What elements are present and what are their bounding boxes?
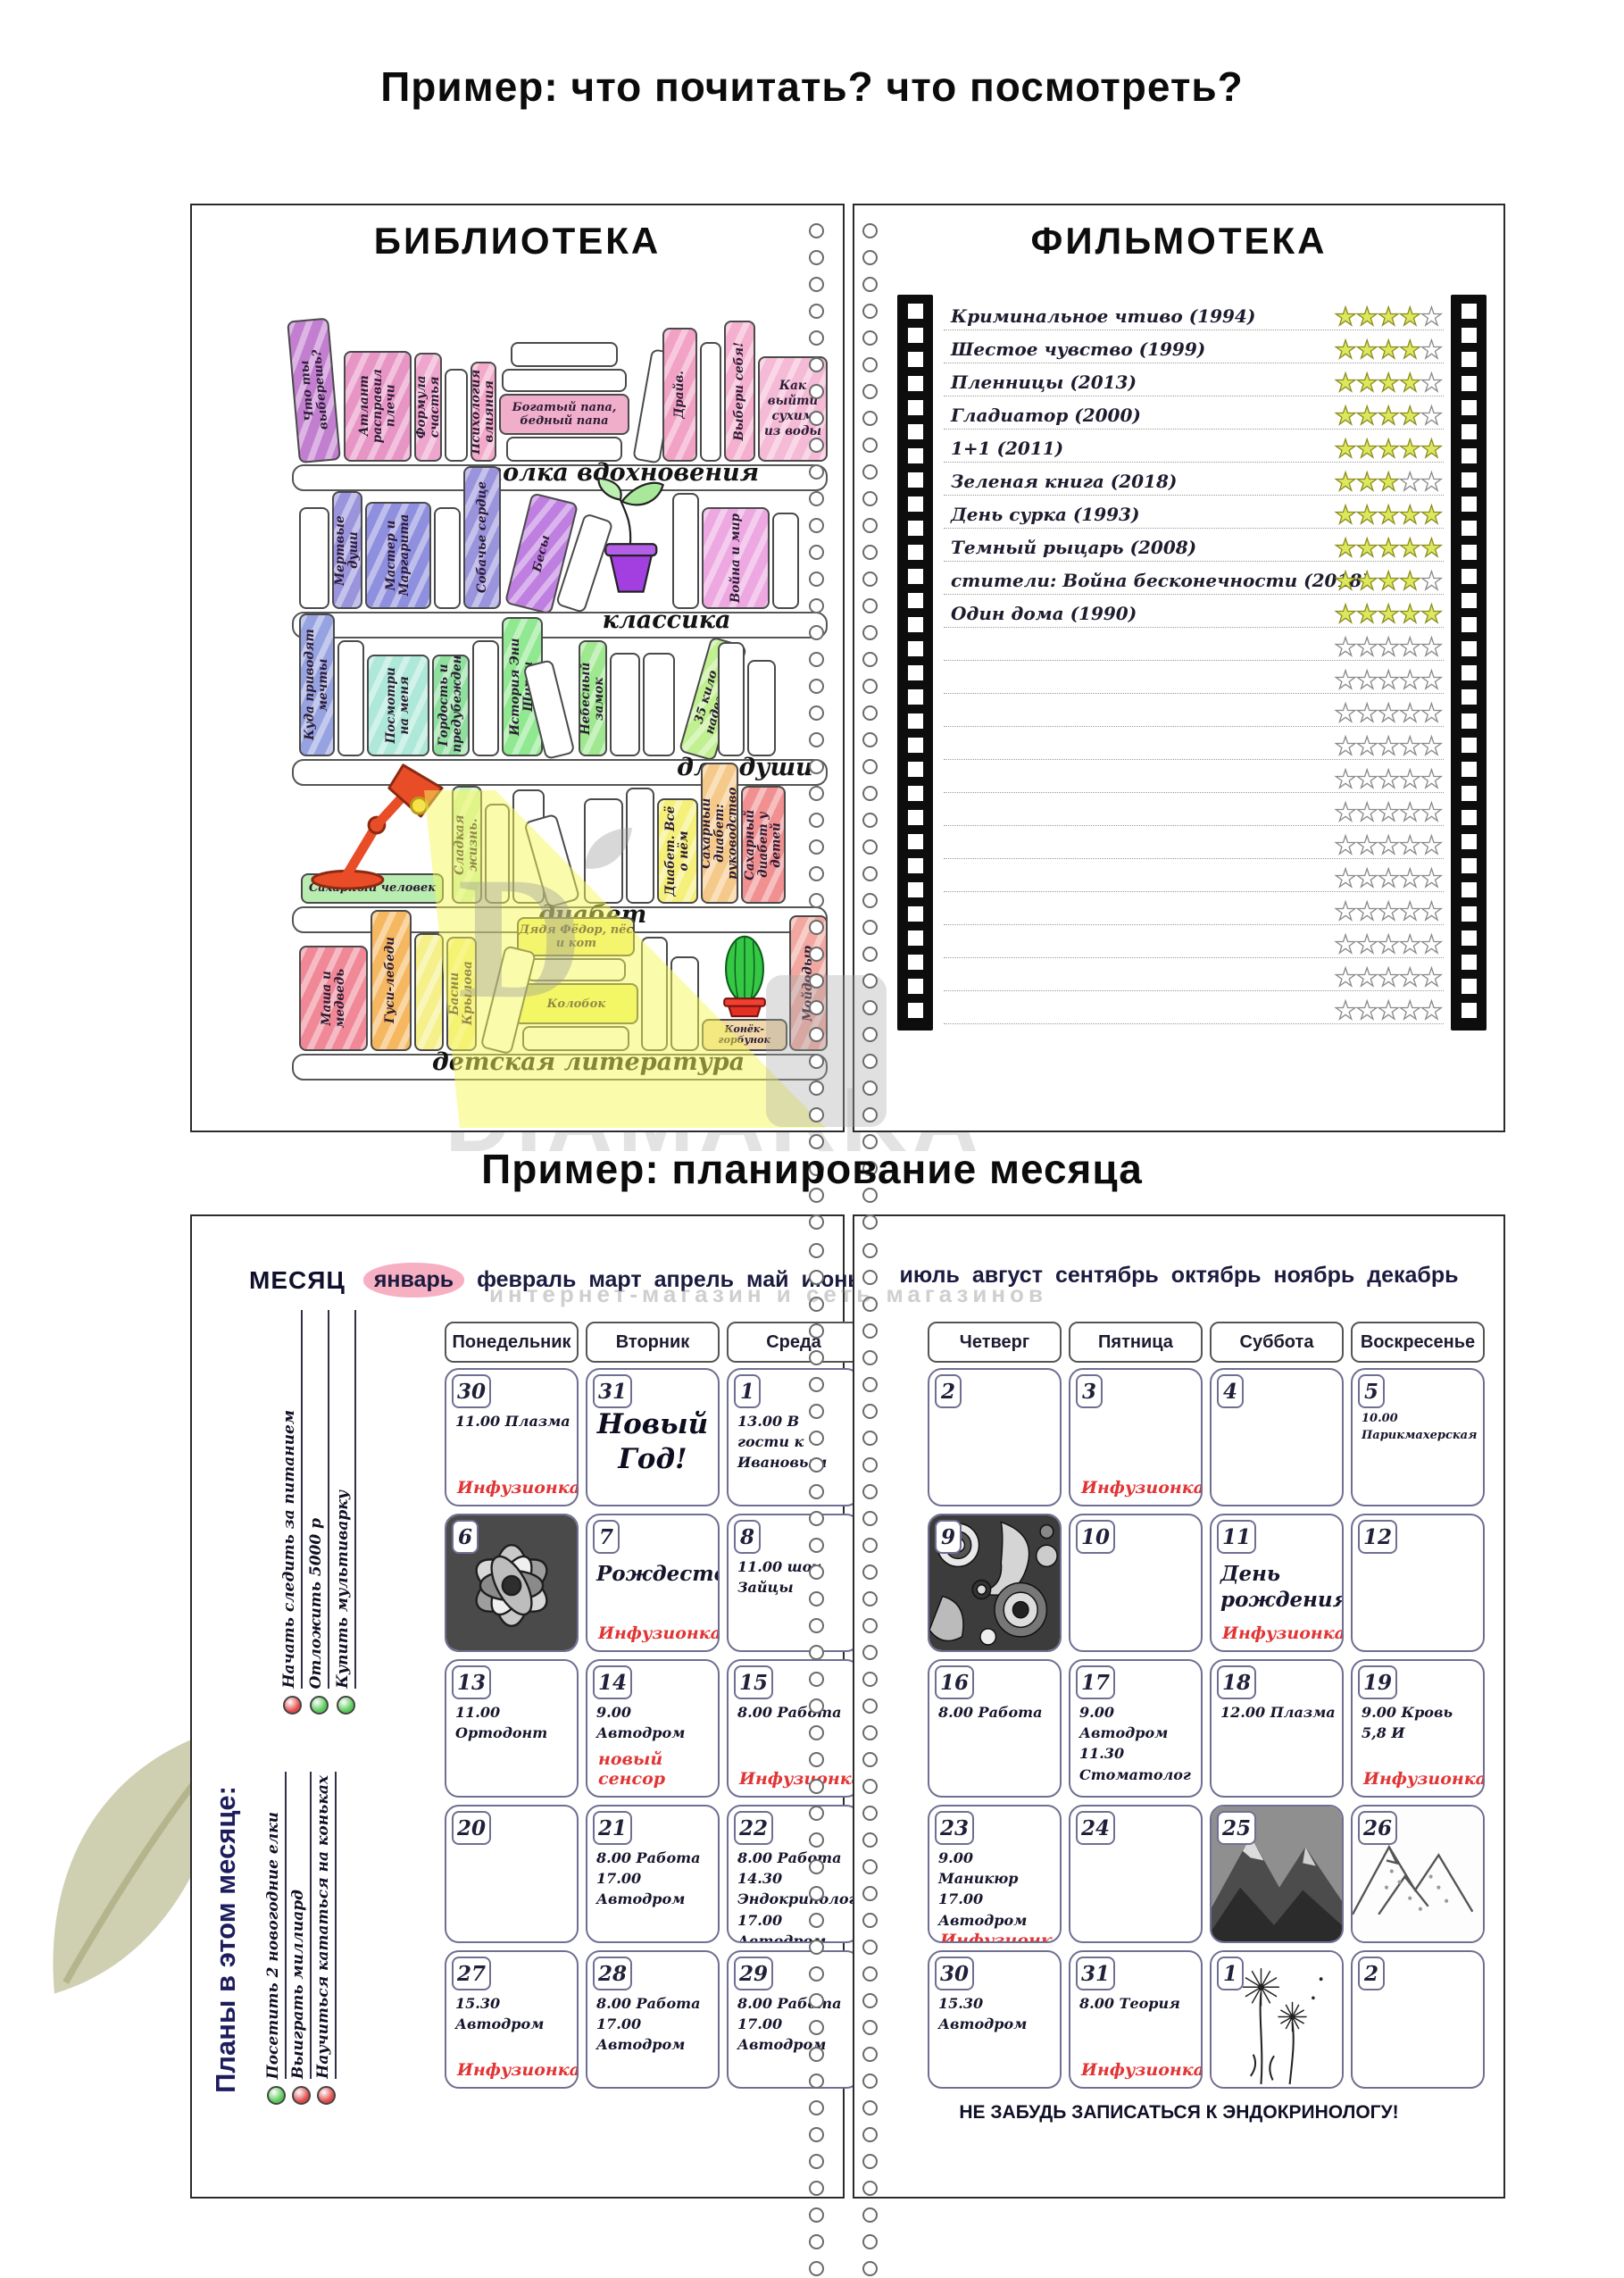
day-number: 14 [593,1665,632,1699]
day-number: 6 [452,1520,479,1554]
star-icon: ★ [1378,930,1399,958]
day-number: 1 [1217,1957,1244,1990]
spiral-ring-hole [809,2127,824,2142]
day-entries: 15.30 Автодром [446,1993,577,2034]
film-title: Шестое чувство (1999) [951,338,1205,360]
goal-line [328,1310,329,1689]
book-spine [445,369,467,462]
filmoteka-title: ФИЛЬМОТЕКА [854,220,1503,263]
film-row: ★★★★★ [944,858,1444,892]
book-spine [472,640,499,756]
spiral-ring-column [809,223,823,1107]
weekday-header: Воскресенье [1351,1322,1485,1363]
spiral-ring-hole [809,1591,824,1606]
spiral-ring-hole [809,1565,824,1580]
goal-item: Отложить 5000 р [304,1310,329,1689]
spiral-ring-hole [809,2207,824,2223]
calendar-day-cell: 179.00 Автодром11.30 Стоматолог [1069,1659,1203,1798]
goal-item: Купить мультиварку [331,1310,356,1689]
calendar-day-cell: 20 [445,1805,579,1943]
star-icon: ★ [1334,369,1355,396]
day-entry-line: 17.00 Автодром [596,1868,712,1909]
film-perforation-icon [908,472,923,488]
book-spine-label: Формула счастья [415,356,442,457]
calendar-day-cell: 218.00 Работа17.00 Автодром [586,1805,720,1943]
month-name: ноябрь [1274,1263,1355,1289]
spiral-ring-hole [809,1698,824,1714]
book-spine [672,493,699,609]
star-icon: ★ [1378,798,1399,826]
star-icon: ★ [1420,798,1442,826]
day-entry-line: 17.00 Автодром [737,1910,854,1943]
bottom-caption: Пример: планирование месяца [0,1145,1624,1193]
book-spine-label: Психология влияния [471,365,496,458]
film-rating-stars: ★★★★★ [1334,863,1442,895]
planner-product-sheet: Пример: что почитать? что посмотреть? DI… [0,0,1624,2278]
goal-text: Отложить 5000 р [307,1518,325,1689]
book-spine-label: Атлант расправил плечи [358,355,398,457]
star-icon: ★ [1399,600,1420,628]
day-number: 17 [1076,1665,1115,1699]
spiral-ring-hole [809,384,824,399]
day-entry-line: 8.00 Теория [1079,1993,1195,2014]
spiral-ring-hole [809,679,824,694]
library-title: БИБЛИОТЕКА [192,220,843,263]
book-horizontal [511,342,618,367]
star-icon: ★ [1420,600,1442,628]
spiral-ring-hole [809,1645,824,1660]
calendar-day-cell: 288.00 Работа17.00 Автодром [586,1950,720,2089]
star-icon: ★ [1399,303,1420,330]
spiral-ring-hole [809,1214,824,1230]
book-spine-label: Маша и медведь [321,949,347,1047]
book-spine: Мертвые души [332,491,362,609]
day-entry-line: 15.30 Автодром [938,1993,1054,2034]
day-entry-line: 8.00 Работа [737,1848,854,1868]
film-rating-stars: ★★★★★ [1334,896,1442,928]
bookshelf: Маша и медведьГуси-лебедиБасни КрыловаДя… [292,897,828,1081]
film-row: ★★★★★ [944,660,1444,694]
spiral-ring-hole [862,1484,878,1499]
star-icon: ★ [1356,501,1378,529]
month-name: июль [899,1263,959,1289]
spiral-ring-hole [809,1081,824,1096]
day-entry-line: 5,8 И [1362,1723,1478,1743]
spiral-ring-hole [862,2127,878,2142]
film-perforation-icon [908,834,923,849]
day-entries: 8.00 Теория [1070,1993,1201,2014]
spiral-ring-hole [862,464,878,480]
star-icon: ★ [1356,930,1378,958]
film-rating-stars: ★★★★★ [1334,565,1442,597]
month-name: сентябрь [1055,1263,1159,1289]
spiral-ring-hole [862,2047,878,2062]
month-name: февраль [477,1267,576,1293]
film-rating-stars: ★★★★★ [1334,764,1442,796]
spiral-ring-hole [862,384,878,399]
spiral-ring-hole [862,2181,878,2196]
star-icon: ★ [1420,468,1442,496]
star-icon: ★ [1356,864,1378,892]
spiral-ring-hole [809,1966,824,1982]
spiral-ring-hole [862,732,878,747]
calendar-day-cell: 6 [445,1514,579,1652]
calendar-day-cell: 228.00 Работа14.30 Эндокринолог17.00 Авт… [727,1805,861,1943]
calendar-day-cell: 113.00 В гости к Ивановым [727,1368,861,1506]
film-row: Пленницы (2013)★★★★★ [944,363,1444,396]
book-spine [485,804,510,904]
spiral-ring-hole [862,572,878,587]
film-row: ★★★★★ [944,924,1444,958]
day-entry-line: 17.00 Автодром [596,2014,712,2055]
star-icon: ★ [1378,897,1399,925]
day-accent-note: Инфузионка [1070,2060,1201,2087]
book-spine-label: Небесный замок [579,645,606,753]
spiral-ring-hole [862,1618,878,1633]
film-row: Темный рыцарь (2008)★★★★★ [944,528,1444,562]
film-perforation-icon [1462,448,1477,463]
spiral-ring-hole [862,973,878,989]
star-icon: ★ [1356,997,1378,1024]
book-horizontal: Колобок [513,983,638,1024]
book-spine [337,640,364,756]
spiral-ring-hole [862,759,878,774]
goal-text: Начать следить за питанием [280,1410,298,1689]
calendar-day-cell: 9 [928,1514,1062,1652]
star-icon: ★ [1356,369,1378,396]
book-spine [772,513,799,609]
film-rating-stars: ★★★★★ [1334,830,1442,862]
day-entry-line: 11.30 Стоматолог [1079,1743,1195,1784]
star-icon: ★ [1356,765,1378,793]
book-spine-label: Мастер и Маргарита [385,505,412,605]
star-icon: ★ [1399,864,1420,892]
spiral-ring-hole [809,223,824,238]
spiral-ring-hole [809,2100,824,2115]
film-row: Криминальное чтиво (1994)★★★★★ [944,296,1444,330]
star-icon: ★ [1334,468,1355,496]
film-row: Гладиатор (2000)★★★★★ [944,396,1444,430]
day-entry-line: 8.00 Работа [737,1702,854,1723]
spiral-ring-hole [809,330,824,346]
star-icon: ★ [1356,633,1378,661]
book-spine-label: Богатый папа, бедный папа [501,401,628,428]
film-perforation-icon [908,762,923,777]
day-entry-line: 17.00 Автодром [938,1889,1054,1930]
day-number: 19 [1358,1665,1397,1699]
film-rating-stars: ★★★★★ [1334,367,1442,399]
book-horizontal: Конёк-горбунок [702,1019,787,1051]
calendar-day-cell: 298.00 Работа17.00 Автодром [727,1950,861,2089]
star-icon: ★ [1378,303,1399,330]
film-perforation-icon [1462,713,1477,729]
calendar-day-cell: 4 [1210,1368,1344,1506]
spiral-ring-hole [809,2047,824,2062]
film-perforation-icon [908,521,923,536]
day-entries: 15.30 Автодром [929,1993,1060,2034]
spiral-ring-hole [862,1806,878,1821]
spiral-ring-hole [862,1565,878,1580]
spiral-ring-hole [809,1243,824,1258]
goal-status-dot [317,2086,336,2105]
star-icon: ★ [1334,534,1355,562]
star-icon: ★ [1399,666,1420,694]
spiral-ring-hole [809,2154,824,2169]
calendar-day-cell: 7РождествоИнфузионка [586,1514,720,1652]
book-horizontal: Дядя Фёдор, пёс и кот [517,917,635,956]
film-perforation-icon [908,593,923,608]
spiral-ring-hole [809,1404,824,1419]
weekday-header: Понедельник [445,1322,579,1363]
film-row: ★★★★★ [944,726,1444,760]
month-name: январь [363,1263,464,1298]
film-perforation-icon [908,786,923,801]
calendar-day-cell: 31Новый Год! [586,1368,720,1506]
spiral-ring-hole [862,1297,878,1312]
film-title: Один дома (1990) [951,603,1137,624]
film-perforation-icon [908,906,923,922]
film-perforation-icon [1462,882,1477,897]
spiral-ring-hole [862,1859,878,1874]
spiral-ring-hole [809,491,824,506]
book-spine: Выбери себя! [724,321,755,462]
spiral-ring-hole [809,1054,824,1069]
spiral-ring-hole [862,1243,878,1258]
spiral-ring-hole [862,1270,878,1285]
spiral-ring-hole [809,947,824,962]
goal-text: Выиграть миллиард [289,1890,307,2079]
film-row: День сурка (1993)★★★★★ [944,495,1444,529]
goal-item: Научиться кататься на коньках [312,1772,337,2079]
spiral-ring-hole [862,1107,878,1122]
star-icon: ★ [1356,534,1378,562]
calendar-day-cell: 510.00 Парикмахерская [1351,1368,1485,1506]
film-perforation-icon [908,665,923,680]
goal-status-dot [310,1696,329,1715]
star-icon: ★ [1420,997,1442,1024]
spiral-ring-hole [809,1027,824,1042]
star-icon: ★ [1378,468,1399,496]
film-rating-stars: ★★★★★ [1334,730,1442,763]
month-name: декабрь [1367,1263,1458,1289]
star-icon: ★ [1334,765,1355,793]
book-spine: Формула счастья [414,353,442,462]
film-rating-stars: ★★★★★ [1334,797,1442,829]
film-perforation-icon [1462,689,1477,705]
shelf-label: детская литература [432,1048,745,1076]
spiral-ring-hole [862,1538,878,1553]
star-icon: ★ [1399,997,1420,1024]
star-icon: ★ [1334,897,1355,925]
film-perforation-icon [1462,376,1477,391]
day-entries: 11.00 Плазма [446,1411,577,1431]
goal-status-dot [283,1696,302,1715]
film-perforation-icon [908,400,923,415]
day-entry-line: Рождество [596,1562,712,1588]
day-entry-line: 9.00 Автодром [1079,1702,1195,1743]
lamp-drawing [299,749,449,879]
spiral-ring-column [862,1243,877,2181]
spiral-ring-hole [809,1993,824,2008]
film-rating-stars: ★★★★★ [1334,466,1442,498]
day-entry-big: Новый Год! [587,1398,718,1477]
book-spine-label: Драйв. [673,371,687,419]
book-spine-label: Выбери себя! [733,342,746,441]
film-perforation-icon [1462,352,1477,367]
day-entry-line: 9.00 Кровь [1362,1702,1478,1723]
bookshelf-row: Что ты выберешь?Атлант расправил плечиФо… [292,308,828,462]
day-entry-line: 8.00 Работа [737,1993,854,2014]
book-horizontal [526,958,626,981]
film-perforation-icon [908,689,923,705]
spiral-ring-hole [809,1779,824,1794]
book-spine [700,342,720,462]
film-perforation-icon [908,979,923,994]
spiral-ring-hole [809,1859,824,1874]
book-spine: Гуси-лебеди [371,910,411,1051]
film-row: Зеленая книга (2018)★★★★★ [944,462,1444,496]
spiral-ring-hole [862,679,878,694]
star-icon: ★ [1420,930,1442,958]
spiral-ring-hole [809,1457,824,1473]
film-strip-edge [1451,295,1487,1031]
film-perforation-icon [1462,593,1477,608]
film-perforation-icon [908,448,923,463]
spiral-ring-hole [809,786,824,801]
star-icon: ★ [1378,699,1399,727]
day-entries: 8.00 Работа17.00 Автодром [729,1993,859,2056]
spiral-ring-hole [809,1940,824,1955]
spiral-ring-hole [809,1538,824,1553]
spiral-ring-hole [862,705,878,721]
spiral-ring-hole [862,652,878,667]
book-spine-label: Басни Крылова [448,940,475,1047]
book-spine-label: Сахарный диабет: руководство [701,767,738,899]
star-icon: ★ [1420,732,1442,760]
day-number: 28 [593,1957,632,1990]
day-entry-line: 15.30 Автодром [455,1993,571,2034]
book-spine [670,956,699,1051]
film-rating-stars: ★★★★★ [1334,631,1442,663]
calendar-day-cell: 158.00 РаботаИнфузионка [727,1659,861,1798]
star-icon: ★ [1378,831,1399,859]
day-number: 30 [452,1374,491,1408]
spiral-ring-hole [809,2234,824,2249]
calendar-day-cell: 2715.30 АвтодромИнфузионка [445,1950,579,2089]
film-rating-stars: ★★★★★ [1334,697,1442,730]
day-number: 3 [1076,1374,1103,1408]
star-icon: ★ [1399,699,1420,727]
spiral-ring-hole [809,1672,824,1687]
spiral-ring-hole [862,813,878,828]
library-page: БИБЛИОТЕКА Что ты выберешь?Атлант распра… [190,204,845,1132]
star-icon: ★ [1420,765,1442,793]
spiral-ring-hole [809,652,824,667]
film-title: стители: Война бесконечности (2018) [951,570,1370,591]
day-number: 25 [1217,1811,1256,1845]
calendar-day-cell: 168.00 Работа [928,1659,1062,1798]
spiral-ring-hole [809,1000,824,1015]
day-number: 18 [1217,1665,1256,1699]
spiral-ring-hole [862,304,878,319]
spiral-ring-hole [862,947,878,962]
star-icon: ★ [1356,468,1378,496]
film-title: Темный рыцарь (2008) [951,537,1196,558]
spiral-ring-hole [862,625,878,640]
spiral-ring-hole [809,625,824,640]
day-entry-line: 8.00 Работа [596,1848,712,1868]
book-spine: Драйв. [662,328,697,462]
day-accent-note: Инфузионка [1070,1478,1201,1505]
spiral-ring-hole [809,973,824,989]
goal-status-dot [267,2086,286,2105]
film-perforation-icon [1462,858,1477,873]
star-icon: ★ [1399,633,1420,661]
film-perforation-icon [908,930,923,946]
spiral-ring-column [862,223,877,1107]
film-perforation-icon [1462,472,1477,488]
calendar-day-cell: 3011.00 ПлазмаИнфузионка [445,1368,579,1506]
spiral-ring-hole [809,304,824,319]
spiral-ring-hole [862,277,878,292]
film-perforation-icon [1462,762,1477,777]
spiral-ring-hole [862,1779,878,1794]
calendar-day-cell: 318.00 ТеорияИнфузионка [1069,1950,1203,2089]
day-number: 12 [1358,1520,1397,1554]
book-spine-label: Что ты выберешь? [295,322,333,458]
day-accent-note: Инфузионка [929,1931,1060,1943]
star-icon: ★ [1378,402,1399,430]
day-entry-line: 14.30 Эндокринолог [737,1868,854,1909]
spiral-ring-hole [809,598,824,613]
desk-lamp-icon: Сахарный человек [299,750,449,904]
spiral-ring-hole [862,411,878,426]
book-spine-label: Сахарный диабет у детей [744,790,784,900]
star-icon: ★ [1378,600,1399,628]
month-name: май [746,1267,788,1293]
film-row: стители: Война бесконечности (2018)★★★★★ [944,561,1444,595]
book-spine [641,937,668,1051]
spiral-ring-hole [809,464,824,480]
calendar-day-cell: 12 [1351,1514,1485,1652]
star-icon: ★ [1420,501,1442,529]
star-icon: ★ [1334,930,1355,958]
month-name: апрель [654,1267,734,1293]
film-perforation-icon [1462,521,1477,536]
spiral-ring-hole [809,1752,824,1767]
film-perforation-icon [908,496,923,512]
day-entries: 10.00 Парикмахерская [1353,1411,1483,1445]
film-perforation-icon [908,858,923,873]
film-perforation-icon [1462,496,1477,512]
star-icon: ★ [1420,964,1442,991]
book-stack: Богатый папа, бедный папа [499,342,629,462]
spiral-ring-hole [862,1752,878,1767]
film-strip-edge [897,295,933,1031]
spiral-ring-hole [809,1913,824,1928]
film-perforation-icon [908,641,923,656]
calendar-day-cell: 10 [1069,1514,1203,1652]
star-icon: ★ [1378,633,1399,661]
book-spine [434,507,461,609]
star-icon: ★ [1399,930,1420,958]
book-spine [299,507,329,609]
film-row: ★★★★★ [944,693,1444,727]
day-accent-note: Инфузионка [446,1478,577,1505]
spiral-ring-hole [862,1725,878,1740]
day-number: 29 [734,1957,773,1990]
spiral-ring-hole [862,1214,878,1230]
